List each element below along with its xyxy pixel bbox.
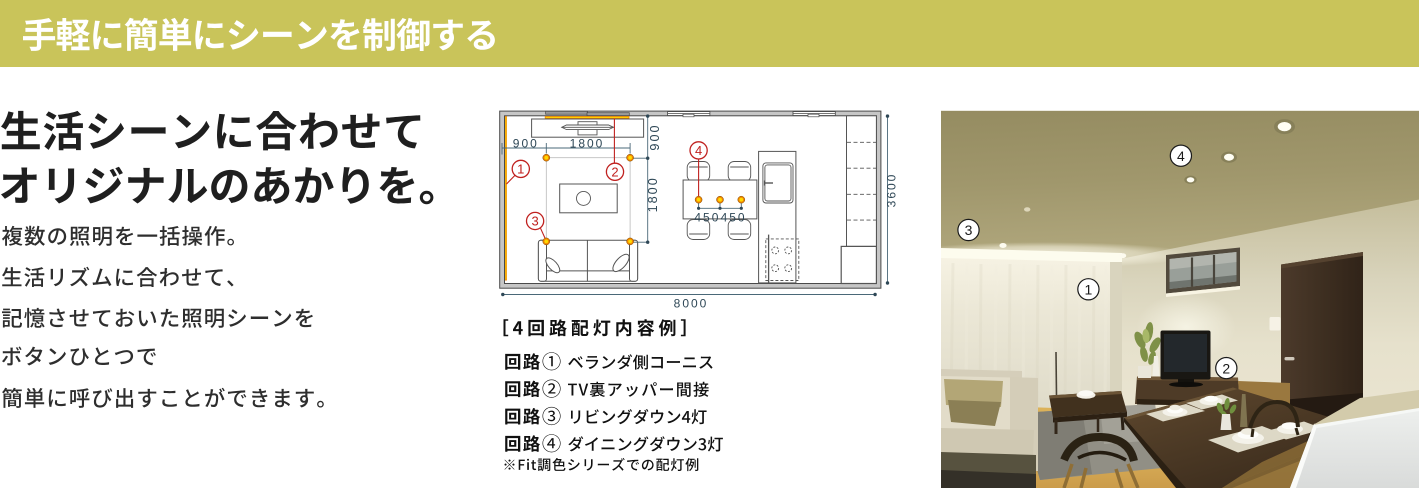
svg-text:4: 4 xyxy=(695,143,702,158)
svg-text:900: 900 xyxy=(513,136,539,150)
svg-text:1800: 1800 xyxy=(570,136,605,150)
svg-text:8000: 8000 xyxy=(674,297,709,311)
svg-text:1800: 1800 xyxy=(646,176,660,212)
svg-text:900: 900 xyxy=(648,123,662,150)
svg-text:3: 3 xyxy=(531,214,538,229)
svg-text:3: 3 xyxy=(965,222,973,238)
svg-text:1: 1 xyxy=(517,162,524,177)
svg-text:2: 2 xyxy=(611,164,618,179)
svg-text:450: 450 xyxy=(721,210,747,224)
svg-text:3600: 3600 xyxy=(884,173,898,208)
svg-text:450: 450 xyxy=(694,210,720,224)
svg-text:2: 2 xyxy=(1222,360,1230,376)
svg-text:1: 1 xyxy=(1085,282,1093,298)
svg-text:4: 4 xyxy=(1177,148,1185,164)
